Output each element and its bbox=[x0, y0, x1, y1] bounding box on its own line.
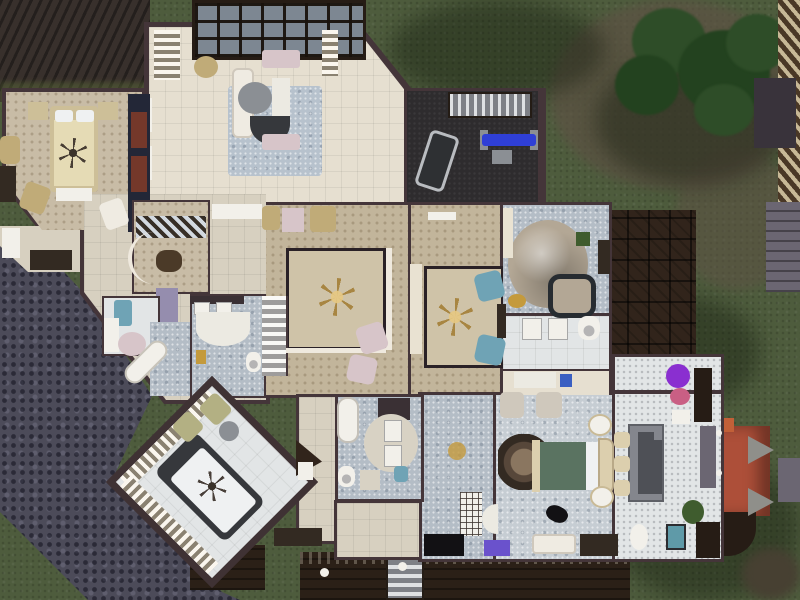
garden-structure bbox=[754, 78, 796, 148]
tree-foliage bbox=[615, 55, 679, 115]
pillow bbox=[55, 110, 73, 122]
gold-towel bbox=[196, 350, 206, 364]
nightstand[interactable] bbox=[98, 102, 118, 120]
railing bbox=[386, 248, 392, 350]
white-counter[interactable] bbox=[298, 462, 313, 480]
gold-treasure-pile[interactable] bbox=[508, 294, 526, 308]
nightstand[interactable] bbox=[28, 102, 48, 120]
bookshelf[interactable] bbox=[131, 156, 147, 192]
glass-table[interactable] bbox=[394, 466, 408, 482]
pink-play-table[interactable] bbox=[282, 208, 304, 232]
vanity-desk[interactable] bbox=[514, 372, 556, 388]
tall-bookshelf[interactable] bbox=[694, 368, 712, 422]
white-sofa[interactable] bbox=[532, 534, 576, 554]
purple-flowers[interactable] bbox=[666, 364, 690, 388]
floorplan-view bbox=[0, 0, 800, 600]
teal-armchair[interactable] bbox=[473, 333, 506, 366]
dining-chair[interactable] bbox=[614, 480, 630, 496]
gold-rug[interactable] bbox=[448, 442, 466, 460]
blanket-chest[interactable] bbox=[56, 188, 92, 201]
side-table[interactable] bbox=[272, 78, 290, 120]
counter-with-lotions[interactable] bbox=[360, 470, 380, 490]
dining-chair[interactable] bbox=[614, 456, 630, 472]
pink-bowl-plant[interactable] bbox=[670, 388, 690, 405]
dining-chair[interactable] bbox=[614, 432, 630, 448]
green-bed-spread[interactable] bbox=[540, 442, 586, 490]
dresser[interactable] bbox=[274, 528, 322, 546]
tv-cabinet[interactable] bbox=[424, 534, 464, 556]
pillow bbox=[76, 110, 94, 122]
console-table[interactable] bbox=[497, 304, 506, 338]
pink-bench[interactable] bbox=[262, 134, 300, 150]
dark-cabinet[interactable] bbox=[580, 534, 618, 556]
bookshelf[interactable] bbox=[131, 112, 147, 148]
staircase[interactable] bbox=[448, 92, 532, 118]
window-shutters bbox=[322, 30, 338, 76]
south-hall-floor bbox=[334, 500, 422, 560]
lattice-screen[interactable] bbox=[460, 492, 482, 536]
small-white-table[interactable] bbox=[672, 410, 690, 424]
chandelier[interactable] bbox=[436, 298, 474, 336]
sink[interactable] bbox=[384, 445, 402, 467]
round-side-table[interactable] bbox=[590, 486, 614, 508]
toilet[interactable] bbox=[578, 316, 600, 340]
toilet[interactable] bbox=[246, 352, 261, 372]
garden-path bbox=[742, 548, 800, 600]
hot-tub[interactable] bbox=[548, 274, 596, 318]
exercise-mat[interactable] bbox=[492, 150, 512, 164]
staircase[interactable] bbox=[262, 296, 288, 376]
dark-desk[interactable] bbox=[30, 250, 72, 270]
pink-loveseat[interactable] bbox=[262, 50, 300, 68]
wall-lamp bbox=[716, 430, 722, 436]
wall-lamp bbox=[716, 470, 722, 476]
stereo[interactable] bbox=[576, 232, 590, 246]
white-dresser[interactable] bbox=[212, 204, 262, 219]
cream-cabinet[interactable] bbox=[503, 208, 513, 258]
gray-armchair[interactable] bbox=[500, 392, 524, 418]
flat-tiled-roof bbox=[606, 210, 696, 366]
toilet[interactable] bbox=[338, 466, 355, 487]
window bbox=[428, 212, 456, 220]
bookcase[interactable] bbox=[0, 166, 16, 202]
sink[interactable] bbox=[384, 420, 402, 442]
tv-screen[interactable] bbox=[484, 540, 510, 556]
teal-bench[interactable] bbox=[666, 524, 686, 550]
gold-armchair[interactable] bbox=[310, 206, 336, 232]
shelf[interactable] bbox=[598, 240, 610, 274]
deck-lamp[interactable] bbox=[398, 562, 407, 571]
tree-shadow bbox=[390, 0, 605, 100]
gray-armchair[interactable] bbox=[536, 392, 562, 418]
window-shutters bbox=[154, 30, 180, 80]
ceiling-fan[interactable] bbox=[58, 138, 88, 168]
blue-stool[interactable] bbox=[560, 374, 572, 387]
sink[interactable] bbox=[548, 318, 568, 340]
bathtub[interactable] bbox=[337, 397, 359, 443]
sink[interactable] bbox=[522, 318, 542, 340]
gold-armchair[interactable] bbox=[0, 136, 20, 164]
tree-foliage bbox=[694, 84, 754, 136]
tea-table[interactable] bbox=[194, 56, 218, 78]
pink-armchair[interactable] bbox=[345, 353, 378, 385]
white-flowers[interactable] bbox=[630, 524, 648, 550]
round-table[interactable] bbox=[238, 82, 272, 114]
dark-shelf[interactable] bbox=[696, 522, 720, 558]
curved-shower-base[interactable] bbox=[196, 312, 250, 346]
deck-lamp[interactable] bbox=[320, 568, 329, 577]
sideboard[interactable] bbox=[700, 426, 716, 488]
green-plant[interactable] bbox=[682, 500, 704, 524]
stairwell-opening[interactable] bbox=[156, 250, 182, 272]
white-desk[interactable] bbox=[2, 228, 20, 258]
chandelier[interactable] bbox=[318, 278, 356, 316]
fence-section bbox=[778, 458, 800, 502]
pillows bbox=[586, 442, 598, 490]
gold-armchair[interactable] bbox=[262, 206, 280, 230]
round-side-table[interactable] bbox=[588, 414, 612, 436]
footboard bbox=[532, 440, 540, 492]
wardrobe[interactable] bbox=[104, 318, 119, 352]
dining-bench[interactable] bbox=[652, 440, 662, 494]
fence-section bbox=[766, 202, 800, 292]
blue-weight-bench[interactable] bbox=[482, 134, 536, 146]
cream-cabinet[interactable] bbox=[410, 264, 422, 354]
